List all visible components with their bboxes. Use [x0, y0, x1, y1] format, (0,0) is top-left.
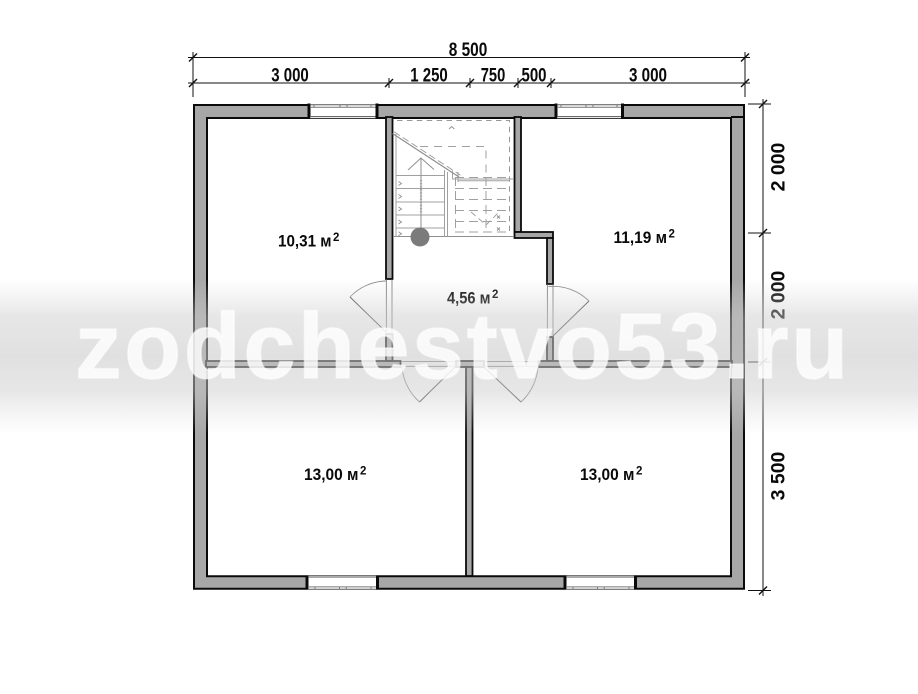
svg-text:2: 2 [669, 228, 675, 240]
svg-text:750: 750 [481, 66, 506, 87]
svg-text:13,00 м: 13,00 м [304, 465, 359, 484]
svg-text:3 000: 3 000 [271, 66, 309, 87]
svg-text:2: 2 [636, 465, 642, 477]
svg-text:500: 500 [522, 66, 547, 87]
svg-text:2: 2 [360, 465, 366, 477]
svg-text:13,00 м: 13,00 м [580, 465, 635, 484]
svg-text:8 500: 8 500 [449, 40, 488, 61]
svg-text:1 250: 1 250 [410, 66, 448, 87]
svg-text:3 500: 3 500 [768, 451, 790, 500]
svg-text:2 000: 2 000 [768, 142, 790, 191]
svg-text:10,31 м: 10,31 м [278, 232, 332, 251]
svg-text:zodchestvo53.ru: zodchestvo53.ru [75, 294, 851, 398]
svg-text:11,19 м: 11,19 м [614, 228, 668, 247]
svg-text:3 000: 3 000 [629, 66, 667, 87]
svg-text:2: 2 [333, 232, 339, 244]
